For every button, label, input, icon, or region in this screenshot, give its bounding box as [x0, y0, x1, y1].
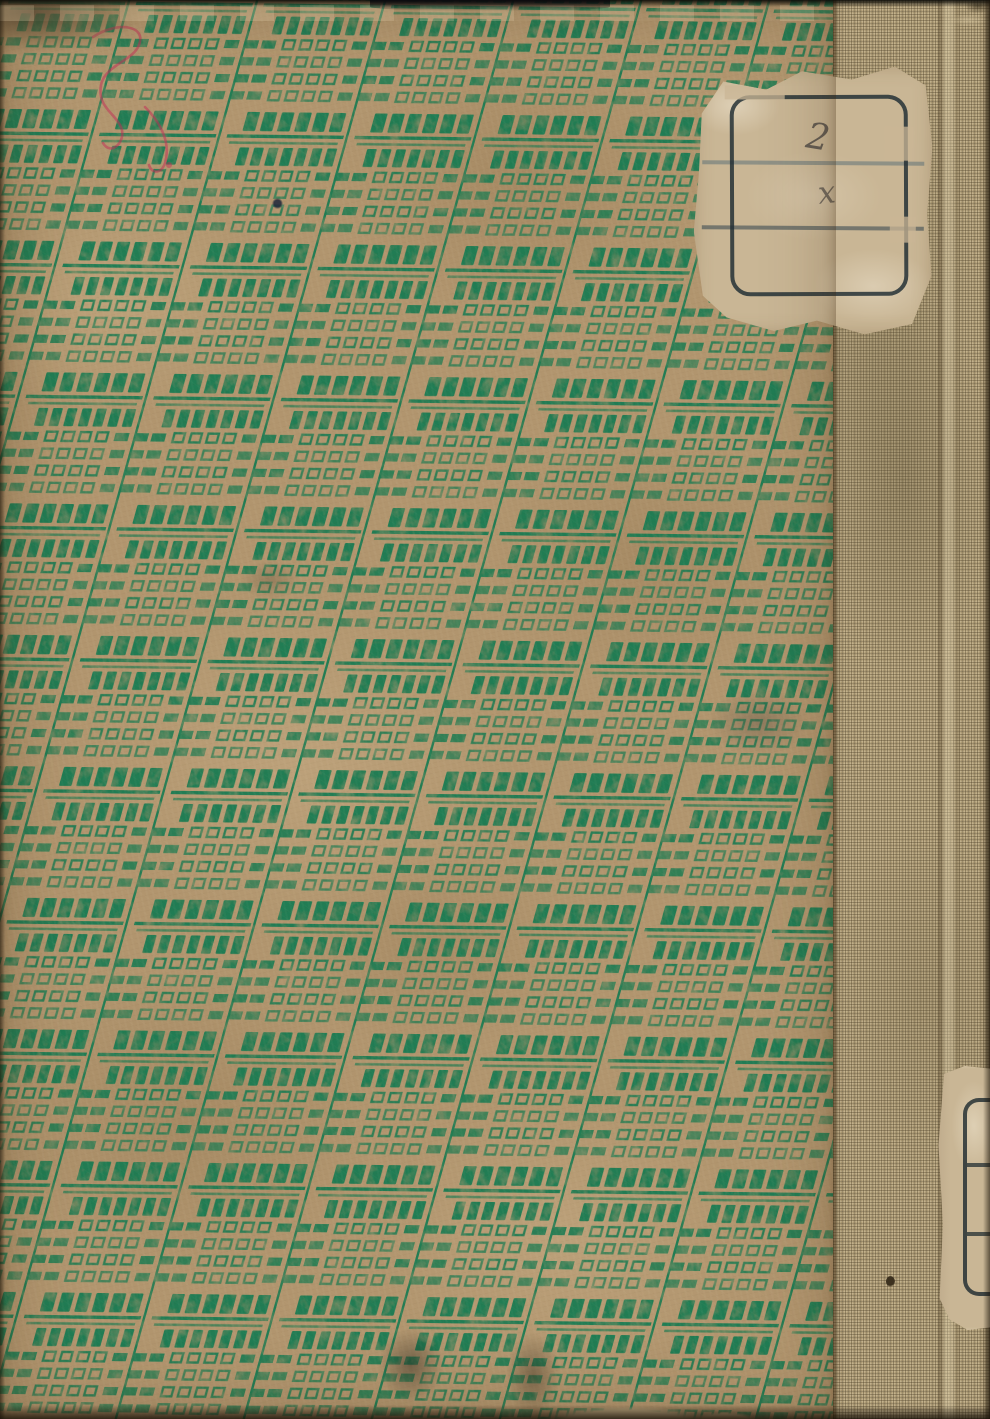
paper-vignette	[0, 0, 836, 1419]
frame-worn-gap	[890, 217, 916, 243]
frame-worn-gap	[884, 126, 914, 160]
left-edge-shadow	[0, 0, 5, 1419]
top-edge-dark-patch	[370, 0, 610, 11]
right-edge-shadow	[983, 0, 990, 1419]
book-back-cover: 2 x	[0, 0, 990, 1419]
cloth-worm-hole	[886, 1276, 895, 1287]
bottom-edge-shadow	[0, 1405, 990, 1419]
edge-label-fragment	[934, 1066, 990, 1330]
